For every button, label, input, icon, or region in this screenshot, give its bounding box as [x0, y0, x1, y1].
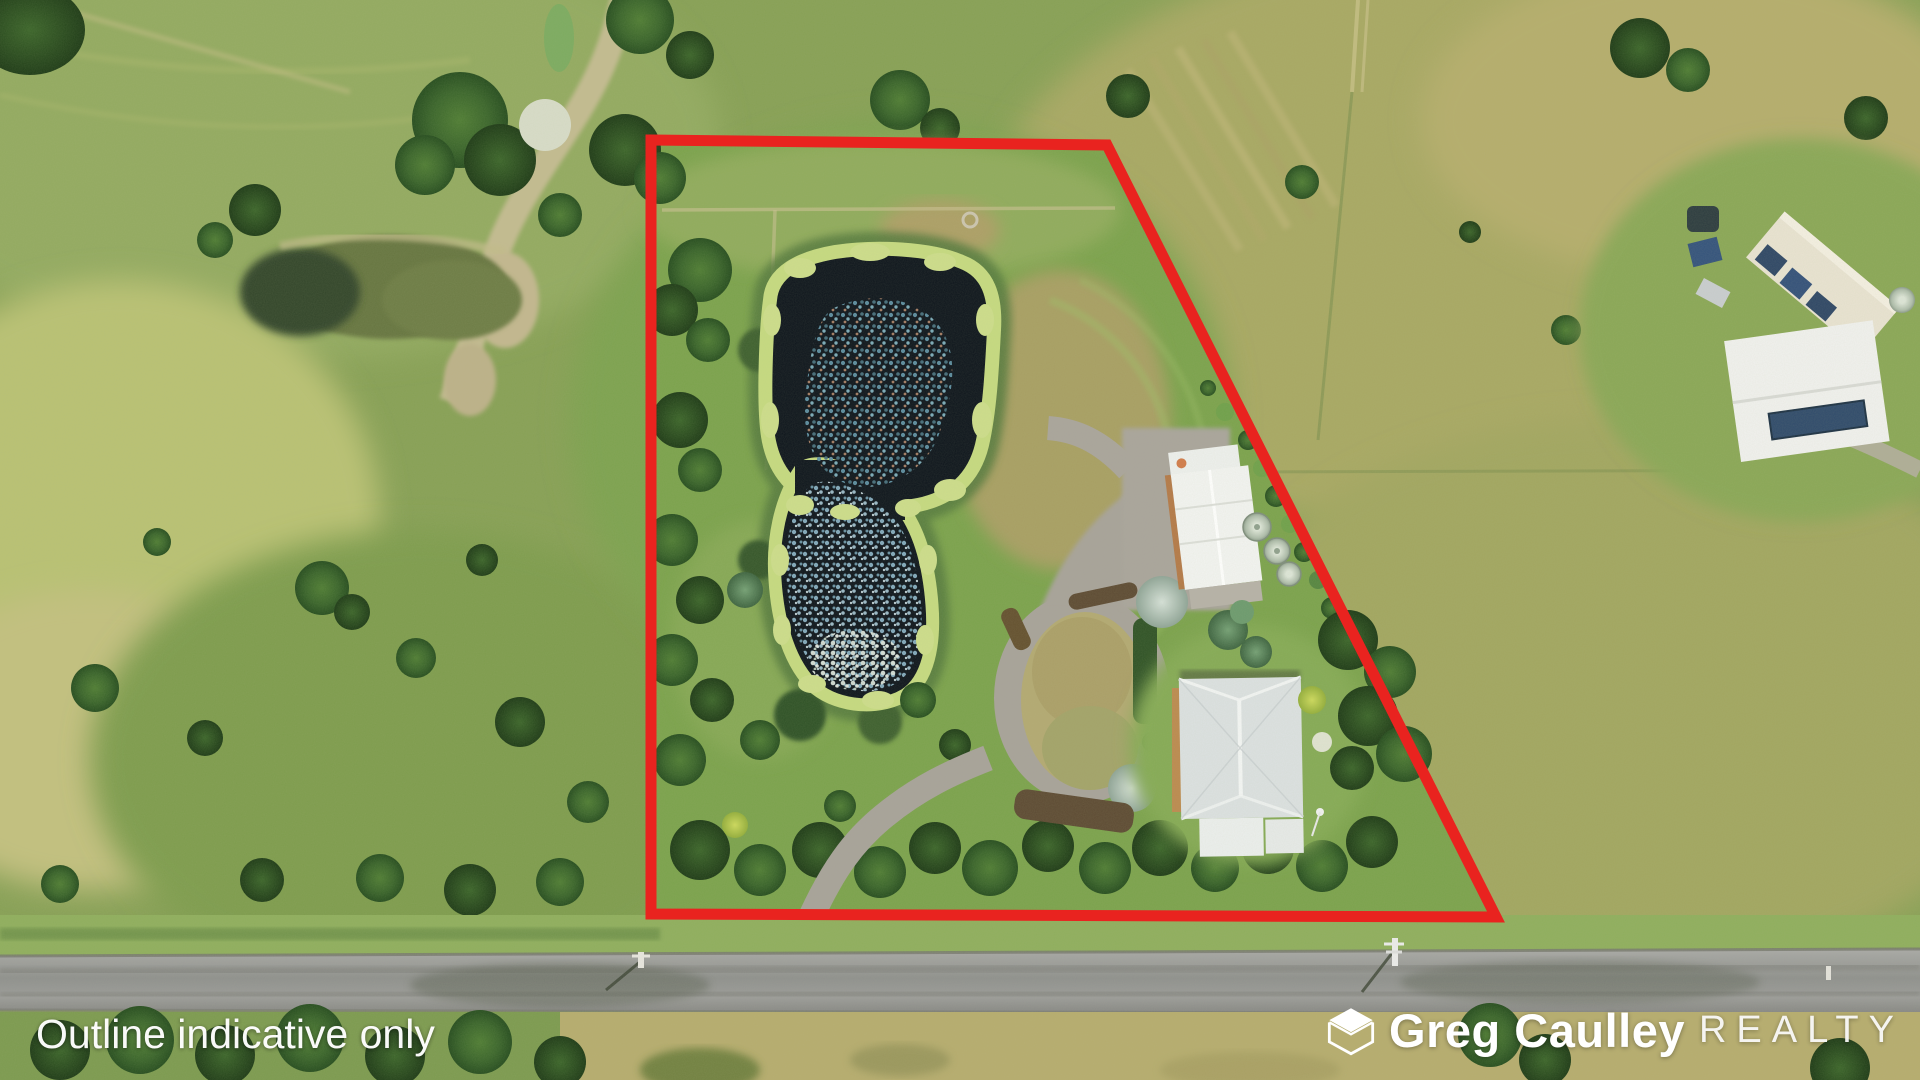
- brand-logo: Greg Caulley REALTY: [1325, 1003, 1904, 1058]
- brand-suffix: REALTY: [1699, 1009, 1904, 1052]
- brand-name: Greg Caulley: [1389, 1003, 1685, 1058]
- listing-photo: Outline indicative only Greg Caulley REA…: [0, 0, 1920, 1080]
- brand-house-icon: [1325, 1005, 1377, 1057]
- aerial-photo: [0, 0, 1920, 1080]
- disclaimer-text: Outline indicative only: [36, 1012, 435, 1057]
